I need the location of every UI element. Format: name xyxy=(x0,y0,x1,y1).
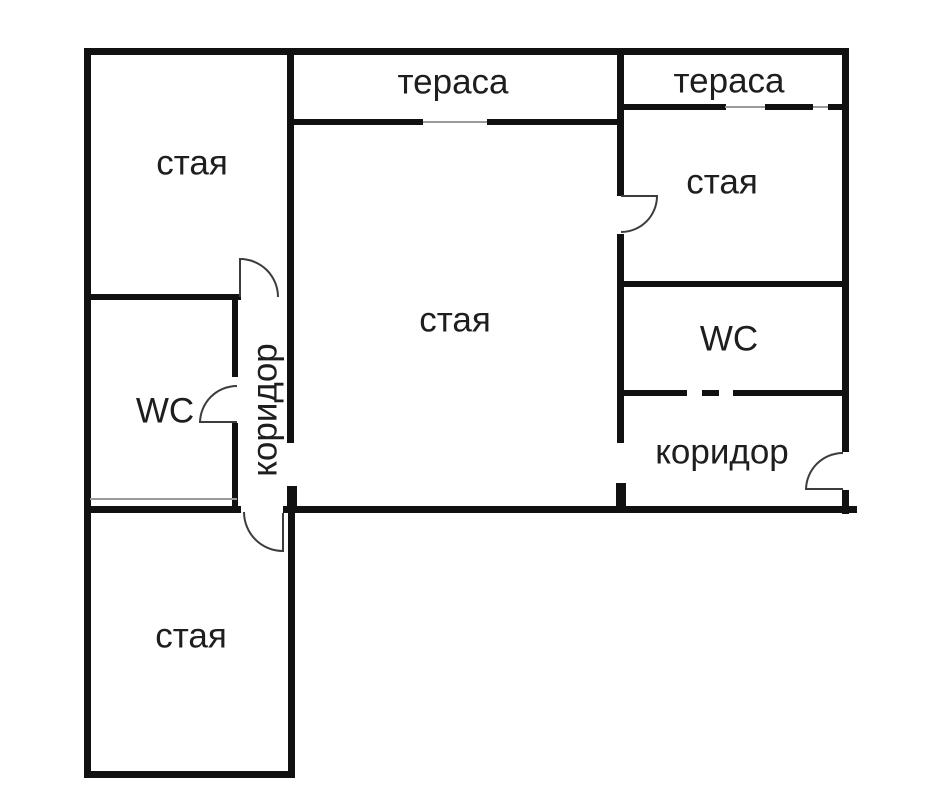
wall-shared-right-upper xyxy=(617,48,624,196)
wall-terrace-mid-bottom-left xyxy=(293,119,423,125)
door-arc-topleft-room xyxy=(240,258,279,297)
wall-terrace-mid-bottom-right xyxy=(487,119,620,125)
wall-topleft-room-right xyxy=(287,48,294,443)
wall-wc-right-bottom-c xyxy=(733,390,844,396)
door-arc-room-right xyxy=(621,196,658,233)
label-room-right: стая xyxy=(686,165,758,200)
wall-bottom-room-bottom xyxy=(84,771,295,778)
label-room-main: стая xyxy=(419,303,491,338)
label-corridor-right: коридор xyxy=(655,435,789,470)
label-wc-left: WC xyxy=(136,394,194,429)
wall-wc-right-bottom-a xyxy=(620,390,687,396)
window-terrace-right-a xyxy=(725,106,765,108)
wall-terrace-right-bottom-a xyxy=(620,104,726,110)
wall-main-bottom-left xyxy=(84,506,241,513)
wall-terrace-right-bottom-c xyxy=(828,104,845,110)
window-wc-left-bottom xyxy=(90,498,237,500)
wall-main-bottom-right xyxy=(283,506,857,513)
label-corridor-left: коридор xyxy=(248,343,283,477)
wall-stub-right xyxy=(616,483,626,511)
wall-wc-right-bottom-b xyxy=(702,390,719,396)
label-room-bottom-left: стая xyxy=(155,619,227,654)
label-terrace-middle: тераса xyxy=(398,65,509,100)
wall-top-outer xyxy=(84,48,849,55)
door-arc-corridor-right xyxy=(805,452,843,490)
wall-shared-right-lower xyxy=(617,234,624,443)
label-room-top-left: стая xyxy=(156,146,228,181)
floor-plan: стая тераса тераса стая стая WC коридор … xyxy=(0,0,940,788)
wall-topleft-room-bottom xyxy=(84,294,241,300)
label-terrace-right: тераса xyxy=(674,64,785,99)
wall-terrace-right-bottom-b xyxy=(765,104,813,110)
wall-stub-left xyxy=(287,486,297,511)
wall-room-right-bottom xyxy=(620,281,849,287)
label-wc-right: WC xyxy=(700,322,758,357)
door-arc-bottom-room xyxy=(243,512,283,552)
wall-corridor-left-upper xyxy=(232,297,238,377)
wall-bottom-room-right xyxy=(288,510,295,778)
window-terrace-mid xyxy=(423,121,487,123)
door-arc-wc-left xyxy=(199,385,237,423)
wall-left-outer xyxy=(84,48,91,778)
